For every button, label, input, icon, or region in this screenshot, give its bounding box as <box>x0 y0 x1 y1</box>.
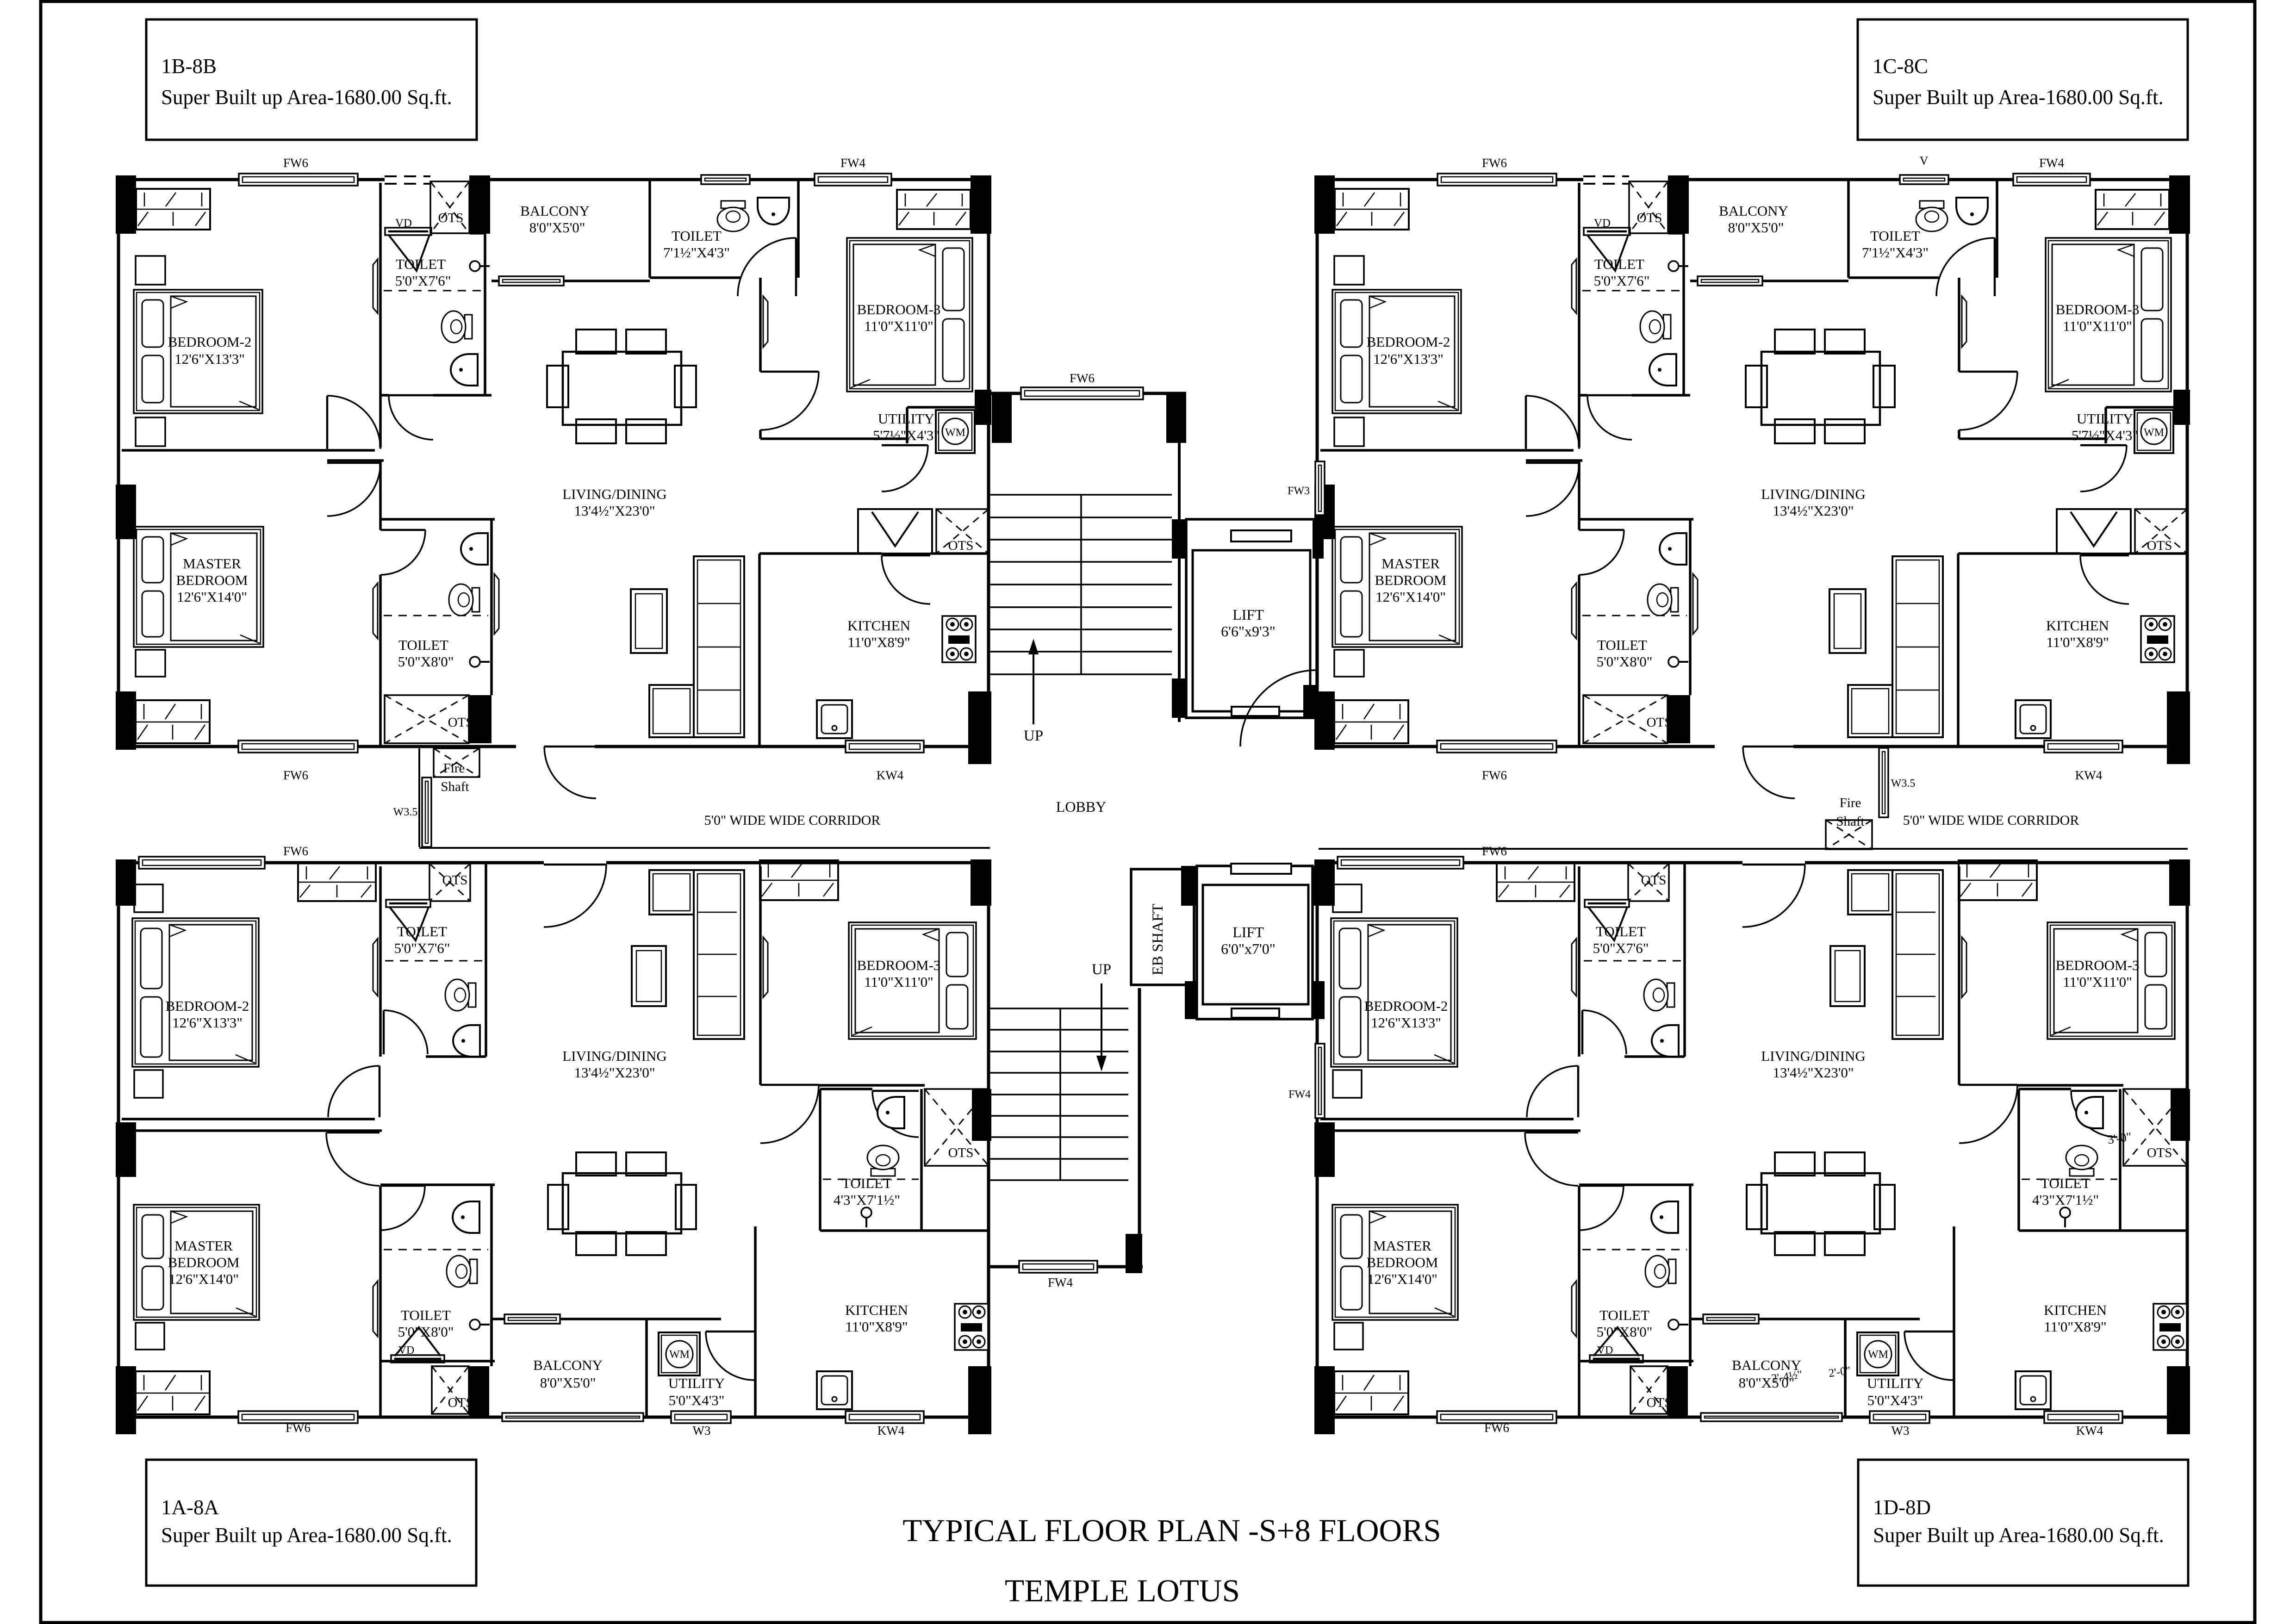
svg-text:FW6: FW6 <box>283 156 308 170</box>
svg-text:Super Built up Area-1680.00 Sq: Super Built up Area-1680.00 Sq.ft. <box>1873 1524 2164 1547</box>
svg-text:W3.5: W3.5 <box>393 806 418 818</box>
svg-text:Super Built up Area-1680.00 Sq: Super Built up Area-1680.00 Sq.ft. <box>1873 86 2164 109</box>
svg-text:LOBBY: LOBBY <box>1056 798 1106 815</box>
svg-text:KW4: KW4 <box>877 1424 905 1437</box>
svg-text:5'0" WIDE WIDE CORRIDOR: 5'0" WIDE WIDE CORRIDOR <box>704 813 881 828</box>
svg-text:EB SHAFT: EB SHAFT <box>1150 904 1166 976</box>
svg-text:12'6"X13'3": 12'6"X13'3" <box>172 1014 243 1031</box>
svg-text:LIFT: LIFT <box>1232 606 1264 623</box>
svg-text:5'0"X8'0": 5'0"X8'0" <box>398 653 454 670</box>
svg-text:12'6"X14'0": 12'6"X14'0" <box>168 1271 239 1287</box>
svg-text:MASTER: MASTER <box>174 1238 233 1254</box>
svg-text:BEDROOM: BEDROOM <box>176 572 248 588</box>
svg-text:V: V <box>1920 154 1929 168</box>
svg-text:TOILET: TOILET <box>398 637 448 653</box>
svg-text:FW3: FW3 <box>1288 485 1310 497</box>
svg-text:UTILITY: UTILITY <box>668 1375 725 1391</box>
svg-text:6'0"x7'0": 6'0"x7'0" <box>1221 940 1276 957</box>
svg-text:5'0"X7'6": 5'0"X7'6" <box>395 273 451 289</box>
svg-text:1B-8B: 1B-8B <box>161 55 217 78</box>
svg-text:1C-8C: 1C-8C <box>1873 55 1928 78</box>
svg-text:OTS: OTS <box>948 1145 974 1160</box>
svg-text:Fire: Fire <box>443 761 465 776</box>
svg-text:BALCONY: BALCONY <box>533 1357 603 1373</box>
svg-text:UTILITY: UTILITY <box>878 411 934 427</box>
svg-text:TOILET: TOILET <box>397 923 447 940</box>
svg-text:OTS: OTS <box>448 715 473 730</box>
svg-text:8'0"X5'0": 8'0"X5'0" <box>529 219 585 236</box>
svg-text:OTS: OTS <box>442 873 468 888</box>
svg-text:1D-8D: 1D-8D <box>1873 1496 1931 1519</box>
svg-text:BEDROOM-3: BEDROOM-3 <box>857 301 941 317</box>
svg-text:FW6: FW6 <box>283 768 308 782</box>
svg-text:Shaft: Shaft <box>1836 814 1864 829</box>
svg-text:MASTER: MASTER <box>183 555 241 572</box>
svg-text:OTS: OTS <box>438 211 464 225</box>
svg-text:VD: VD <box>398 1344 415 1356</box>
svg-text:W3.5: W3.5 <box>1891 778 1916 790</box>
svg-text:11'0"X8'9": 11'0"X8'9" <box>847 634 910 650</box>
svg-text:KITCHEN: KITCHEN <box>847 617 910 634</box>
svg-text:KITCHEN: KITCHEN <box>845 1302 908 1318</box>
svg-text:FW4: FW4 <box>1288 1089 1311 1101</box>
svg-text:BALCONY: BALCONY <box>520 203 590 219</box>
svg-text:FW6: FW6 <box>283 844 308 858</box>
svg-text:UP: UP <box>1024 728 1043 744</box>
svg-text:5'0"X4'3": 5'0"X4'3" <box>669 1392 725 1408</box>
svg-text:5'7½"X4'3": 5'7½"X4'3" <box>873 427 940 443</box>
svg-text:TOILET: TOILET <box>396 256 446 272</box>
svg-text:LIVING/DINING: LIVING/DINING <box>562 1048 667 1064</box>
svg-text:TYPICAL FLOOR PLAN -S+8 FLOORS: TYPICAL FLOOR PLAN -S+8 FLOORS <box>902 1513 1441 1548</box>
svg-text:11'0"X11'0": 11'0"X11'0" <box>864 318 933 334</box>
svg-text:KW4: KW4 <box>877 768 904 782</box>
svg-text:TOILET: TOILET <box>401 1307 451 1323</box>
svg-text:7'1½"X4'3": 7'1½"X4'3" <box>663 244 730 261</box>
svg-text:11'0"X8'9": 11'0"X8'9" <box>845 1319 908 1335</box>
svg-text:1A-8A: 1A-8A <box>161 1496 219 1519</box>
svg-text:6'6"x9'3": 6'6"x9'3" <box>1221 623 1276 640</box>
svg-text:LIVING/DINING: LIVING/DINING <box>562 486 667 502</box>
svg-text:13'4½"X23'0": 13'4½"X23'0" <box>574 503 655 519</box>
svg-text:4'3"X7'1½": 4'3"X7'1½" <box>834 1192 900 1208</box>
svg-text:VD: VD <box>395 217 412 230</box>
svg-text:LIFT: LIFT <box>1232 924 1264 940</box>
svg-text:WM: WM <box>669 1349 690 1361</box>
svg-text:FW6: FW6 <box>1070 371 1095 385</box>
svg-text:13'4½"X23'0": 13'4½"X23'0" <box>574 1064 655 1081</box>
svg-text:TOILET: TOILET <box>842 1175 892 1191</box>
svg-text:11'0"X11'0": 11'0"X11'0" <box>864 974 933 990</box>
svg-text:BEDROOM-2: BEDROOM-2 <box>168 334 252 350</box>
svg-text:BEDROOM: BEDROOM <box>168 1254 239 1270</box>
svg-text:BEDROOM-2: BEDROOM-2 <box>166 998 249 1014</box>
svg-text:FW6: FW6 <box>286 1421 311 1435</box>
svg-text:5'0"X8'0": 5'0"X8'0" <box>398 1324 454 1340</box>
svg-text:12'6"X13'3": 12'6"X13'3" <box>174 351 245 367</box>
svg-text:5'0" WIDE WIDE CORRIDOR: 5'0" WIDE WIDE CORRIDOR <box>1903 813 2079 828</box>
svg-text:Fire: Fire <box>1840 796 1861 810</box>
svg-text:WM: WM <box>945 427 965 439</box>
svg-text:8'0"X5'0": 8'0"X5'0" <box>540 1375 596 1391</box>
svg-text:FW4: FW4 <box>840 156 866 170</box>
svg-text:12'6"X14'0": 12'6"X14'0" <box>177 589 247 605</box>
svg-text:OTS: OTS <box>948 538 974 553</box>
svg-text:Shaft: Shaft <box>441 779 469 794</box>
svg-text:FW4: FW4 <box>1048 1276 1073 1289</box>
svg-text:Super Built up Area-1680.00 Sq: Super Built up Area-1680.00 Sq.ft. <box>161 86 452 109</box>
svg-text:Super Built up Area-1680.00 Sq: Super Built up Area-1680.00 Sq.ft. <box>161 1524 452 1547</box>
svg-text:W3: W3 <box>693 1424 711 1437</box>
svg-text:5'0"X7'6": 5'0"X7'6" <box>394 940 450 956</box>
svg-text:UP: UP <box>1092 961 1111 978</box>
svg-text:BEDROOM-3: BEDROOM-3 <box>857 957 941 973</box>
svg-text:TEMPLE LOTUS: TEMPLE LOTUS <box>1005 1573 1240 1608</box>
svg-text:TOILET: TOILET <box>672 228 722 244</box>
